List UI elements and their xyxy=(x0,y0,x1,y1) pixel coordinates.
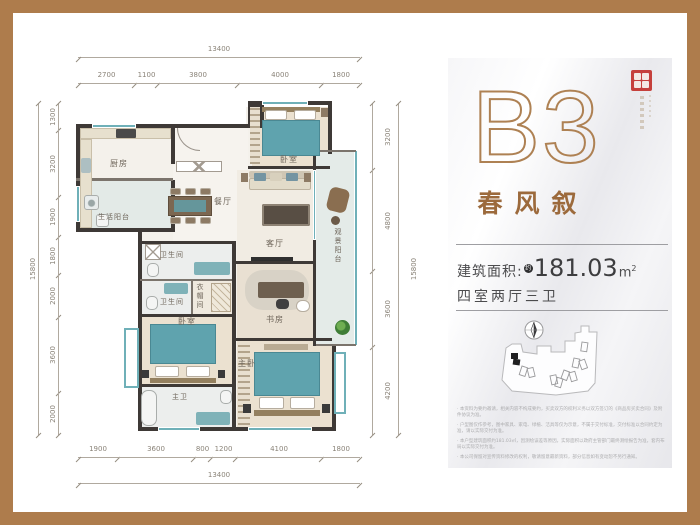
toilet-icon xyxy=(146,296,158,310)
pillow xyxy=(290,397,315,409)
room-label-service-balcony: 生活阳台 xyxy=(98,212,130,222)
disclaimer-line: · 户型图仅作参考，图中家具、家电、绿植、洁具等仅为示意，不属于交付标准，交付标… xyxy=(457,423,665,437)
tv-console xyxy=(251,257,293,261)
brand-seal-icon xyxy=(631,70,652,91)
cloakroom-closet xyxy=(211,283,231,312)
info-panel: B3 春风叙 建筑面积: 约 181.03 m2 四室两厅三卫 xyxy=(448,58,672,468)
room-label-kitchen: 厨房 xyxy=(110,158,128,169)
sofa-cushion xyxy=(286,173,298,181)
site-map xyxy=(478,318,642,400)
lounge-chair-study xyxy=(296,300,310,312)
dim-segment: 4800 xyxy=(372,170,381,271)
sofa-cushion xyxy=(270,173,282,181)
unit-code: B3 xyxy=(472,76,601,178)
dim-segment: 1800 xyxy=(322,74,360,84)
room-label-living: 客厅 xyxy=(266,238,284,249)
divider-bottom xyxy=(456,310,668,311)
area-value: 181.03 xyxy=(534,254,618,282)
dim-top-segments: 2700 1100 3800 4000 1800 xyxy=(78,74,360,84)
floorplan-sheet: 厨房 生活阳台 餐厅 客厅 卧室 观景阳台 卫生间 卫生间 衣帽间 卧室 主卫 … xyxy=(0,0,700,525)
dim-segment: 2700 xyxy=(78,74,135,84)
dim-segment: 1800 xyxy=(322,448,360,458)
nightstand xyxy=(322,404,330,413)
room-label-master-bath: 主卫 xyxy=(172,392,188,402)
brand-vertical-text-icon xyxy=(640,95,644,129)
plant-icon xyxy=(335,320,350,335)
disclaimer-line: · 本资料为要约邀请，相关内容不构成要约，买卖双方的权利义务以双方签订的《商品房… xyxy=(457,407,665,421)
balcony-glass-outer xyxy=(354,150,358,346)
bed-headboard-left xyxy=(150,378,216,383)
room-label-bedroom-top: 卧室 xyxy=(280,154,298,165)
bay-window-bedroom-left xyxy=(124,328,139,388)
window-master-bath xyxy=(158,427,200,431)
layout-text: 四室两厅三卫 xyxy=(457,286,559,306)
nightstand xyxy=(243,404,251,413)
bed-headboard-master xyxy=(254,410,320,416)
dining-runner xyxy=(174,200,206,212)
disclaimer-line: · 本公司保留对宣传资料修改的权利，敬请留意最新资料，部分信息如有变动恕不另行通… xyxy=(457,455,665,462)
dim-left-segments: 1300 3200 1900 1800 2000 3600 2000 xyxy=(58,103,66,435)
dim-segment: 2000 xyxy=(58,393,67,435)
wall-study-master-divider xyxy=(236,338,332,341)
bed-master xyxy=(254,352,320,396)
wall-bath2-cloak-divider xyxy=(191,281,193,314)
room-label-study: 书房 xyxy=(266,314,284,325)
pillow xyxy=(186,366,210,377)
desk-chair xyxy=(276,299,289,309)
room-label-cloakroom: 衣帽间 xyxy=(195,283,205,310)
window-bedroom-top xyxy=(262,101,308,105)
room-label-dining: 餐厅 xyxy=(214,196,232,207)
wall-bath-divider xyxy=(140,279,232,281)
dim-segment: 3600 xyxy=(372,271,381,347)
dining-chair xyxy=(170,217,181,224)
toilet-icon xyxy=(220,390,232,404)
dim-segment: 13400 xyxy=(78,48,360,58)
wall-bedroom-right xyxy=(328,101,332,154)
dim-segment: 3600 xyxy=(58,317,67,393)
dim-segment: 3800 xyxy=(158,74,238,84)
nightstand xyxy=(321,108,328,117)
dining-chair xyxy=(200,188,211,195)
side-table xyxy=(304,173,311,182)
dim-top-total: 13400 xyxy=(78,48,360,58)
dim-segment: 4200 xyxy=(372,347,381,435)
room-label-bedroom-left: 卧室 xyxy=(178,316,196,327)
dining-chair xyxy=(170,188,181,195)
dim-segment: 13400 xyxy=(78,474,360,484)
wall-service-bottom xyxy=(76,228,175,232)
dim-segment: 800 xyxy=(194,448,211,458)
dim-segment: 3200 xyxy=(58,130,67,197)
study-desk xyxy=(258,282,304,298)
wardrobe-bedroom-top xyxy=(250,107,260,164)
floor-carve-top xyxy=(80,105,246,125)
wall-balcony-top xyxy=(316,150,356,152)
wall-balcony-bottom xyxy=(316,344,356,346)
kitchen-counter-left xyxy=(80,139,92,228)
dim-segment: 1300 xyxy=(58,103,67,130)
pillow xyxy=(294,110,316,120)
vanity-bath1 xyxy=(194,262,230,275)
dim-segment: 4100 xyxy=(236,448,322,458)
disclaimer-line: · 本户型建筑面积约181.03㎡，因测绘误差等原因，实际面积以政府主管部门最终… xyxy=(457,439,665,453)
bathtub-icon xyxy=(141,390,157,426)
pillow xyxy=(155,366,179,377)
dining-chair xyxy=(185,217,196,224)
wall-center-vertical xyxy=(232,241,236,431)
nightstand xyxy=(218,370,225,378)
dim-right-total: 15800 xyxy=(398,103,406,435)
coffee-table xyxy=(262,204,310,226)
dim-segment: 3600 xyxy=(118,448,194,458)
dim-segment: 15800 xyxy=(398,103,407,435)
dining-chair xyxy=(200,217,211,224)
dining-chair xyxy=(185,188,196,195)
vanity-bath2 xyxy=(164,283,188,294)
brand-vertical-text2-icon xyxy=(649,95,651,117)
sink-icon xyxy=(81,158,91,173)
bed-bench-master xyxy=(264,344,308,350)
toilet-icon xyxy=(147,263,159,277)
divider-top xyxy=(456,244,668,245)
shower-icon xyxy=(145,244,161,260)
dim-segment: 1800 xyxy=(58,237,67,275)
stove-icon xyxy=(116,129,136,138)
room-label-bath2: 卫生间 xyxy=(160,297,184,307)
bay-window-master xyxy=(334,352,346,414)
dim-segment: 1200 xyxy=(211,448,236,458)
dim-left-total: 15800 xyxy=(38,103,46,435)
washer-icon xyxy=(84,195,99,210)
wall-living-study-divider xyxy=(236,261,316,264)
dim-segment: 1100 xyxy=(135,74,158,84)
shoe-cabinet xyxy=(176,161,222,172)
area-unit: m2 xyxy=(619,264,637,280)
bed-bedroom-left xyxy=(150,324,216,364)
area-label: 建筑面积: xyxy=(457,261,523,281)
approx-badge: 约 xyxy=(524,264,533,273)
pillow xyxy=(259,397,284,409)
wall-kitchen-right-a xyxy=(171,124,175,164)
wall-bedroom-masterbath-divider xyxy=(138,384,236,387)
room-label-view-balcony: 观景阳台 xyxy=(333,228,343,264)
window-balcony-inner xyxy=(313,170,316,240)
dim-bottom-total: 13400 xyxy=(78,474,360,484)
bed-bedroom-top xyxy=(262,120,320,156)
dim-segment: 15800 xyxy=(38,103,47,435)
balcony-table xyxy=(331,216,340,225)
unit-name: 春风叙 xyxy=(468,184,598,220)
dim-bottom-segments: 1900 3600 800 1200 4100 1800 xyxy=(78,448,360,458)
room-label-bath1: 卫生间 xyxy=(160,250,184,260)
compass-icon xyxy=(525,321,543,339)
dim-segment: 4000 xyxy=(238,74,322,84)
pillow xyxy=(265,110,287,120)
dim-segment: 1900 xyxy=(78,448,118,458)
window-master-bedroom xyxy=(248,427,312,431)
side-table xyxy=(241,173,248,182)
vanity-master-bath xyxy=(196,412,230,425)
dim-segment: 1900 xyxy=(58,197,67,237)
wall-bedroom-bottom xyxy=(248,166,330,169)
area-row: 建筑面积: 约 181.03 m2 xyxy=(457,254,636,282)
dim-right-segments: 3200 4800 3600 4200 xyxy=(372,103,380,435)
disclaimer-block: · 本资料为要约邀请，相关内容不构成要约，买卖双方的权利义务以双方签订的《商品房… xyxy=(457,404,665,464)
dim-segment: 3200 xyxy=(372,103,381,170)
room-label-master-bedroom: 主卧 xyxy=(238,358,256,369)
sofa-cushion xyxy=(254,173,266,181)
dim-segment: 2000 xyxy=(58,275,67,317)
nightstand xyxy=(142,370,149,378)
